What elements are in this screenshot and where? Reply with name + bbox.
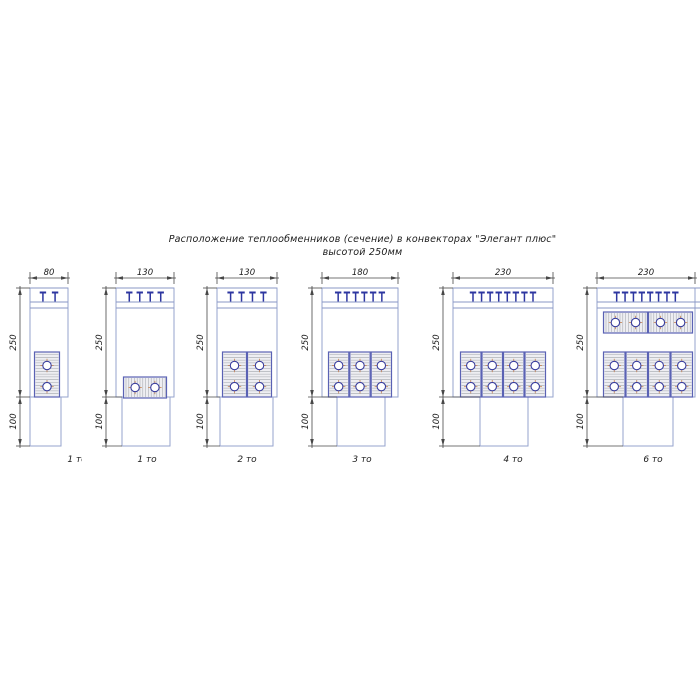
tube-circle bbox=[255, 382, 263, 390]
tube-circle bbox=[633, 382, 641, 390]
height-dimension: 250100 bbox=[9, 286, 30, 448]
unit-count-label: 1 то bbox=[67, 455, 82, 465]
width-dimension: 130 bbox=[215, 268, 279, 284]
tube-circle bbox=[131, 383, 139, 391]
convector-diagram-1: 802501001 то bbox=[0, 256, 82, 480]
heat-exchanger-block bbox=[504, 352, 525, 397]
heat-exchanger-block bbox=[482, 352, 503, 397]
width-dimension: 130 bbox=[114, 268, 176, 284]
convector-diagram-6: 2302501006 то bbox=[567, 256, 700, 480]
tube-circle bbox=[610, 382, 618, 390]
height-dimension-250-label: 250 bbox=[576, 334, 586, 350]
tube-circle bbox=[531, 361, 539, 369]
unit-count-label: 3 то bbox=[352, 455, 372, 465]
width-dimension-label: 180 bbox=[352, 268, 368, 278]
air-duct bbox=[122, 397, 170, 446]
height-dimension-100-label: 100 bbox=[196, 413, 206, 429]
heat-exchanger-block bbox=[604, 352, 626, 397]
tube-circle bbox=[334, 382, 342, 390]
tube-circle bbox=[334, 361, 342, 369]
tube-circle bbox=[633, 361, 641, 369]
heat-exchanger-block bbox=[626, 352, 648, 397]
tube-circle bbox=[151, 383, 159, 391]
convector-diagram-3: 1302501002 то bbox=[187, 256, 291, 480]
height-dimension-250-label: 250 bbox=[9, 334, 19, 350]
tube-circle bbox=[467, 382, 475, 390]
tube-circle bbox=[655, 361, 663, 369]
tube-circle bbox=[255, 361, 263, 369]
tube-circle bbox=[488, 361, 496, 369]
tube-circle bbox=[43, 382, 51, 390]
heat-exchanger-block bbox=[35, 352, 60, 397]
height-dimension-100-label: 100 bbox=[9, 413, 19, 429]
tube-circle bbox=[510, 382, 518, 390]
height-dimension-250-label: 250 bbox=[301, 334, 311, 350]
tube-circle bbox=[655, 382, 663, 390]
width-dimension: 80 bbox=[28, 268, 70, 284]
heat-exchanger-block bbox=[671, 352, 693, 397]
drawing-canvas: Расположение теплообменников (сечение) в… bbox=[0, 0, 700, 700]
tube-circle bbox=[230, 382, 238, 390]
height-dimension-250-label: 250 bbox=[432, 334, 442, 350]
convector-diagram-4: 1802501003 то bbox=[292, 256, 412, 480]
tube-circle bbox=[356, 382, 364, 390]
unit-count-label: 1 то bbox=[137, 455, 157, 465]
width-dimension-label: 230 bbox=[495, 268, 511, 278]
drawing-title-line1: Расположение теплообменников (сечение) в… bbox=[25, 234, 700, 247]
tube-circle bbox=[631, 318, 639, 326]
heat-exchanger-block bbox=[371, 352, 391, 397]
unit-count-label: 6 то bbox=[643, 455, 663, 465]
width-dimension: 230 bbox=[451, 268, 555, 284]
convector-diagram-5: 2302501004 то bbox=[423, 256, 567, 480]
heat-exchanger-block bbox=[649, 352, 671, 397]
tube-circle bbox=[510, 361, 518, 369]
tube-circle bbox=[676, 318, 684, 326]
tube-circle bbox=[678, 382, 686, 390]
width-dimension-label: 80 bbox=[44, 268, 55, 278]
heat-exchanger-block bbox=[649, 312, 693, 333]
width-dimension-label: 230 bbox=[638, 268, 654, 278]
width-dimension-label: 130 bbox=[239, 268, 255, 278]
convector-diagram-2: 1302501001 то bbox=[86, 256, 188, 480]
unit-count-label: 4 то bbox=[503, 455, 523, 465]
heat-exchanger-block bbox=[461, 352, 482, 397]
tube-circle bbox=[488, 382, 496, 390]
air-duct bbox=[220, 397, 273, 446]
tube-circle bbox=[610, 361, 618, 369]
heat-exchanger-block bbox=[525, 352, 546, 397]
unit-count-label: 2 то bbox=[237, 455, 257, 465]
height-dimension-100-label: 100 bbox=[95, 413, 105, 429]
tube-circle bbox=[377, 382, 385, 390]
tube-circle bbox=[43, 361, 51, 369]
tube-circle bbox=[230, 361, 238, 369]
height-dimension: 250100 bbox=[196, 286, 220, 448]
height-dimension-100-label: 100 bbox=[576, 413, 586, 429]
height-dimension-250-label: 250 bbox=[95, 334, 105, 350]
air-duct bbox=[30, 397, 61, 446]
width-dimension: 230 bbox=[595, 268, 697, 284]
height-dimension-100-label: 100 bbox=[301, 413, 311, 429]
tube-circle bbox=[356, 361, 364, 369]
tube-circle bbox=[678, 361, 686, 369]
tube-circle bbox=[467, 361, 475, 369]
heat-exchanger-block bbox=[604, 312, 648, 333]
air-duct bbox=[623, 397, 673, 446]
tube-circle bbox=[531, 382, 539, 390]
heat-exchanger-block bbox=[350, 352, 370, 397]
air-duct bbox=[480, 397, 528, 446]
heat-exchanger-block bbox=[223, 352, 247, 397]
heat-exchanger-block bbox=[248, 352, 272, 397]
width-dimension-label: 130 bbox=[137, 268, 153, 278]
width-dimension: 180 bbox=[320, 268, 400, 284]
tube-circle bbox=[656, 318, 664, 326]
height-dimension-100-label: 100 bbox=[432, 413, 442, 429]
air-duct bbox=[337, 397, 385, 446]
tube-circle bbox=[377, 361, 385, 369]
tube-circle bbox=[611, 318, 619, 326]
heat-exchanger-block bbox=[124, 377, 167, 398]
height-dimension-250-label: 250 bbox=[196, 334, 206, 350]
heat-exchanger-block bbox=[329, 352, 349, 397]
